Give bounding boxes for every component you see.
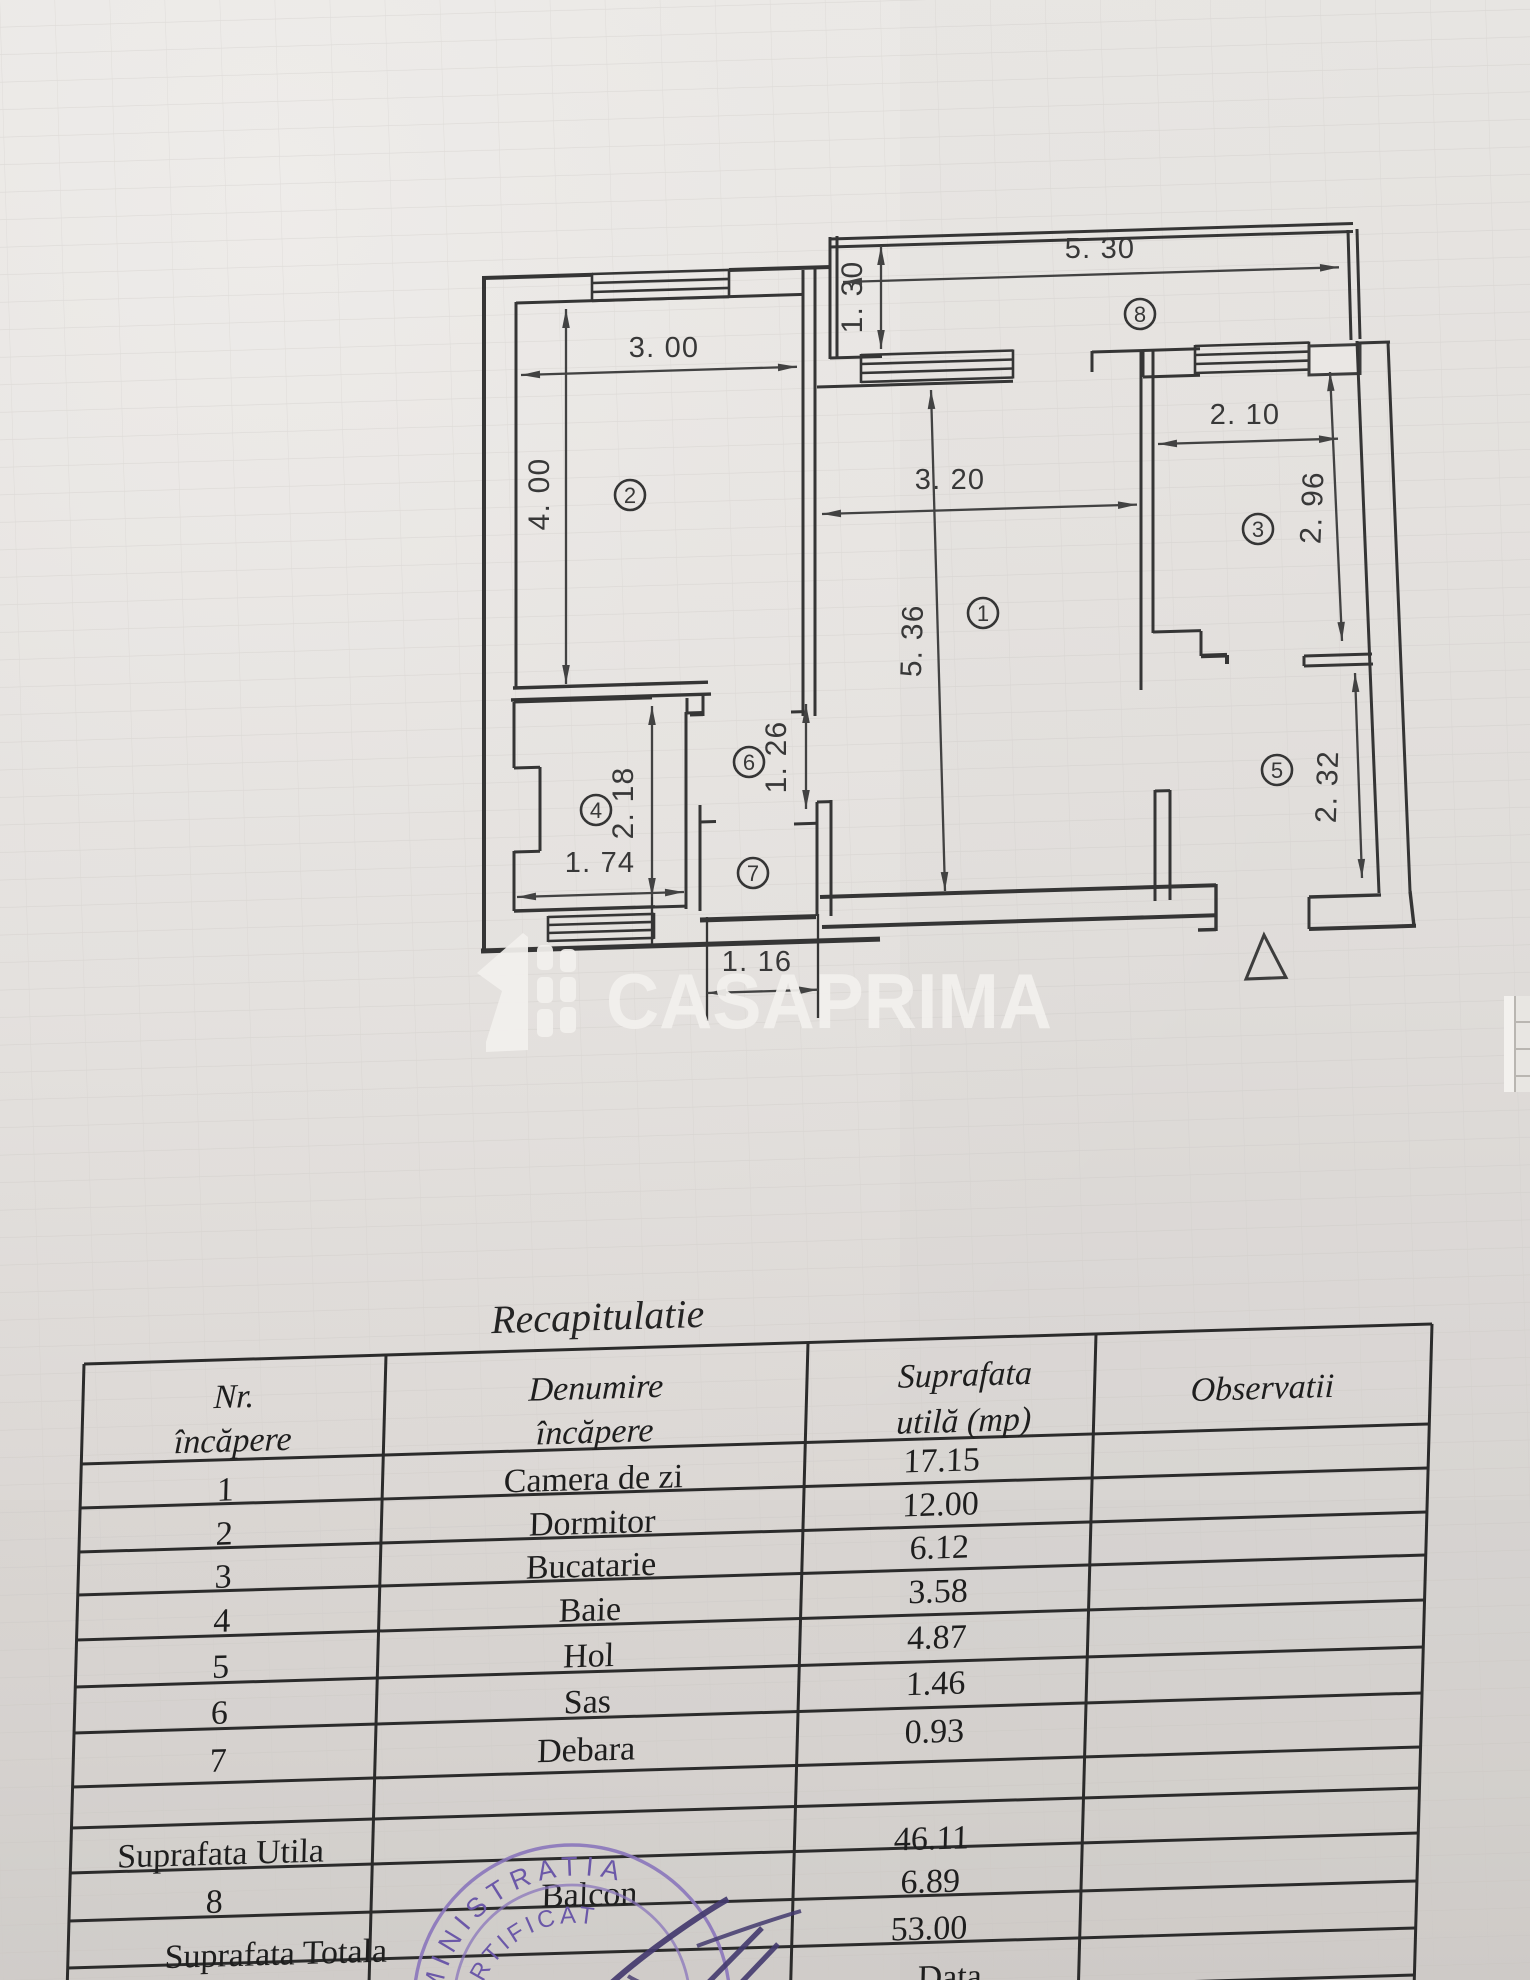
svg-text:46.11: 46.11	[893, 1819, 969, 1858]
svg-text:încăpere: încăpere	[535, 1412, 654, 1452]
svg-text:1: 1	[977, 601, 989, 626]
svg-text:0.93: 0.93	[904, 1713, 964, 1752]
svg-text:Recapitulatie: Recapitulatie	[489, 1291, 705, 1342]
svg-text:2: 2	[624, 483, 636, 508]
svg-text:4. 00: 4. 00	[523, 458, 556, 531]
svg-text:1. 26: 1. 26	[760, 721, 793, 794]
svg-text:Sas: Sas	[563, 1683, 611, 1721]
svg-text:2. 18: 2. 18	[607, 767, 640, 840]
svg-text:3: 3	[1252, 517, 1264, 542]
svg-text:Hol: Hol	[563, 1637, 615, 1675]
svg-text:3: 3	[214, 1558, 232, 1595]
svg-text:8: 8	[1134, 302, 1146, 327]
svg-text:Nr.: Nr.	[212, 1378, 255, 1416]
svg-text:Denumire: Denumire	[527, 1368, 664, 1409]
svg-text:6: 6	[743, 750, 755, 775]
svg-text:Suprafata Totala: Suprafata Totala	[164, 1933, 388, 1977]
svg-text:2. 32: 2. 32	[1310, 750, 1346, 824]
svg-text:Dormitor: Dormitor	[529, 1503, 657, 1544]
svg-text:Baie: Baie	[558, 1591, 621, 1630]
svg-text:53.00: 53.00	[890, 1909, 967, 1948]
svg-text:6: 6	[210, 1694, 228, 1731]
svg-text:7: 7	[209, 1742, 227, 1779]
svg-text:utilă (mp): utilă (mp)	[896, 1401, 1032, 1442]
svg-text:17.15: 17.15	[903, 1441, 980, 1480]
svg-text:Camera de zi: Camera de zi	[503, 1458, 683, 1500]
svg-text:CASAPRIMA: CASAPRIMA	[606, 957, 1052, 1045]
svg-text:8: 8	[205, 1883, 223, 1920]
svg-text:5: 5	[1271, 758, 1283, 783]
svg-text:Debara: Debara	[537, 1730, 636, 1770]
svg-text:5. 30: 5. 30	[1065, 233, 1136, 265]
svg-text:6.89: 6.89	[900, 1863, 960, 1902]
svg-text:2. 10: 2. 10	[1210, 399, 1281, 431]
svg-text:3.58: 3.58	[908, 1573, 968, 1612]
svg-text:4.87: 4.87	[907, 1619, 967, 1658]
svg-text:Data: Data	[917, 1958, 982, 1980]
svg-text:1.46: 1.46	[905, 1665, 965, 1704]
svg-text:7: 7	[747, 861, 759, 886]
svg-text:4: 4	[590, 798, 602, 823]
svg-text:2: 2	[215, 1515, 233, 1552]
svg-text:5: 5	[212, 1648, 230, 1685]
svg-text:4: 4	[213, 1602, 231, 1639]
svg-text:Suprafata: Suprafata	[897, 1355, 1032, 1396]
svg-text:2. 96: 2. 96	[1294, 471, 1330, 545]
svg-text:12.00: 12.00	[902, 1485, 979, 1524]
svg-text:1. 74: 1. 74	[565, 847, 636, 879]
svg-text:5. 36: 5. 36	[895, 604, 930, 678]
svg-text:Suprafata Utila: Suprafata Utila	[117, 1832, 325, 1875]
svg-text:încăpere: încăpere	[173, 1421, 292, 1461]
svg-text:3. 00: 3. 00	[629, 332, 700, 364]
svg-text:Bucatarie: Bucatarie	[526, 1546, 657, 1587]
svg-text:Observatii: Observatii	[1190, 1368, 1334, 1409]
svg-text:6.12: 6.12	[909, 1529, 969, 1568]
svg-text:1: 1	[216, 1471, 234, 1508]
svg-text:1. 30: 1. 30	[836, 261, 869, 334]
svg-text:3. 20: 3. 20	[915, 464, 986, 496]
